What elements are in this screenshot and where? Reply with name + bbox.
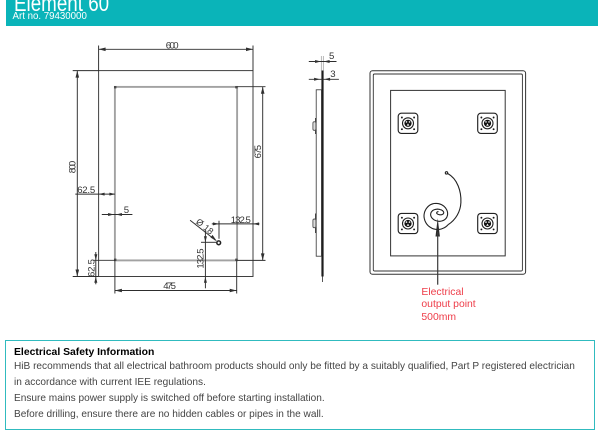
svg-text:475: 475 xyxy=(163,281,176,292)
svg-text:800: 800 xyxy=(67,161,78,174)
svg-text:62.5: 62.5 xyxy=(77,185,95,196)
svg-text:675: 675 xyxy=(253,145,264,159)
svg-text:Ø 18: Ø 18 xyxy=(194,217,215,237)
svg-text:132.5: 132.5 xyxy=(196,248,207,268)
svg-text:600: 600 xyxy=(166,40,179,51)
svg-text:62.5: 62.5 xyxy=(86,259,97,277)
svg-text:3: 3 xyxy=(330,69,335,80)
svg-text:132.5: 132.5 xyxy=(231,215,251,226)
svg-text:5: 5 xyxy=(329,51,334,62)
svg-text:5: 5 xyxy=(124,205,129,216)
